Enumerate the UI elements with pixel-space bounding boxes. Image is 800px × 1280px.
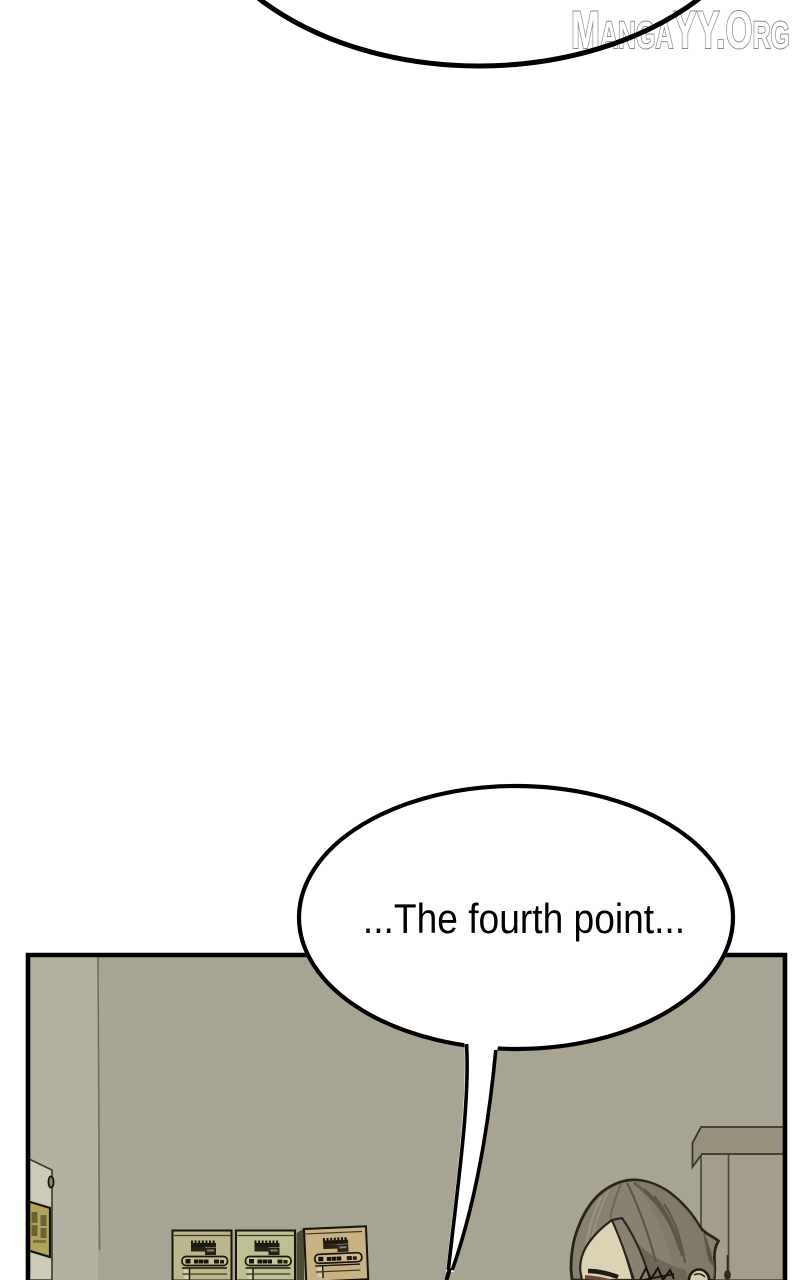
svg-text:...The fourth point...: ...The fourth point... bbox=[363, 896, 685, 943]
